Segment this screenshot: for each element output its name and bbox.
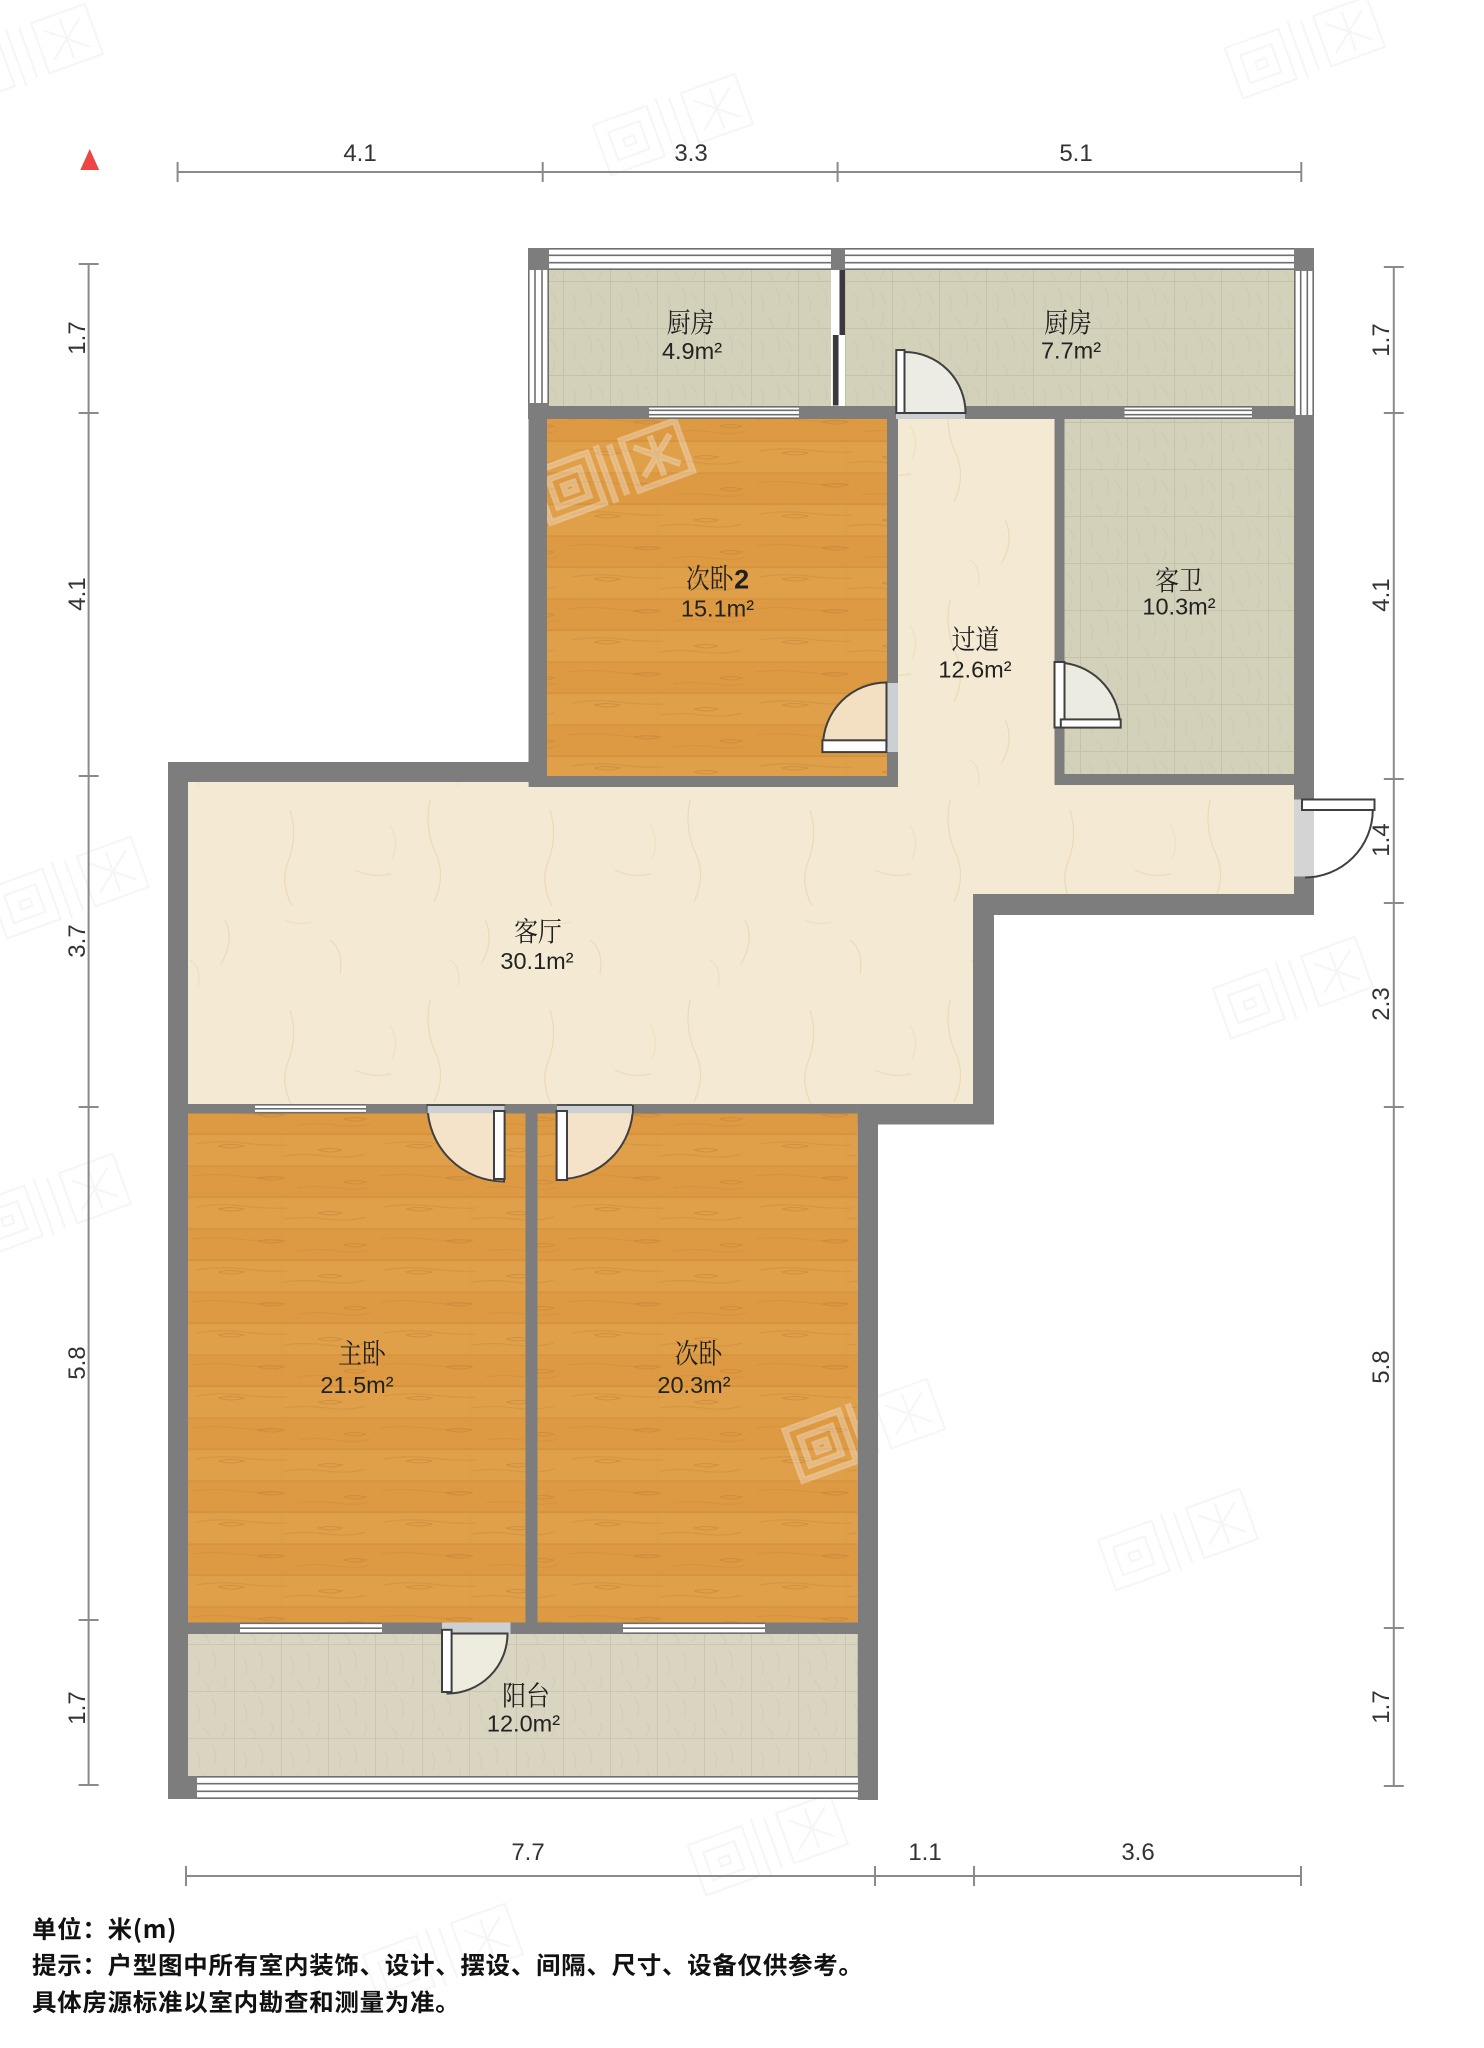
svg-text:1.7: 1.7	[64, 321, 91, 354]
svg-text:5.8: 5.8	[64, 1346, 91, 1379]
svg-text:30.1m²: 30.1m²	[500, 948, 573, 974]
svg-text:20.3m²: 20.3m²	[657, 1372, 730, 1398]
svg-text:7.7: 7.7	[511, 1839, 544, 1866]
svg-text:21.5m²: 21.5m²	[320, 1372, 393, 1398]
svg-text:1.7: 1.7	[64, 1691, 91, 1724]
svg-text:4.1: 4.1	[1368, 578, 1395, 611]
svg-text:1.7: 1.7	[1368, 1690, 1395, 1723]
svg-text:4.9m²: 4.9m²	[662, 338, 722, 364]
svg-text:12.0m²: 12.0m²	[487, 1711, 560, 1737]
svg-text:2: 2	[734, 565, 749, 595]
svg-text:2.3: 2.3	[1368, 987, 1395, 1020]
svg-text:1.1: 1.1	[908, 1839, 941, 1866]
svg-text:4.1: 4.1	[64, 577, 91, 610]
svg-text:10.3m²: 10.3m²	[1142, 594, 1215, 620]
svg-text:3.6: 3.6	[1121, 1839, 1154, 1866]
svg-text:5.8: 5.8	[1368, 1350, 1395, 1383]
svg-text:7.7m²: 7.7m²	[1041, 338, 1101, 364]
svg-text:1.4: 1.4	[1368, 823, 1395, 856]
svg-text:4.1: 4.1	[343, 140, 376, 167]
svg-text:3.3: 3.3	[674, 140, 707, 167]
svg-text:5.1: 5.1	[1059, 140, 1092, 167]
svg-text:12.6m²: 12.6m²	[938, 657, 1011, 683]
svg-text:1.7: 1.7	[1368, 323, 1395, 356]
svg-text:15.1m²: 15.1m²	[681, 596, 754, 622]
svg-text:3.7: 3.7	[64, 924, 91, 957]
